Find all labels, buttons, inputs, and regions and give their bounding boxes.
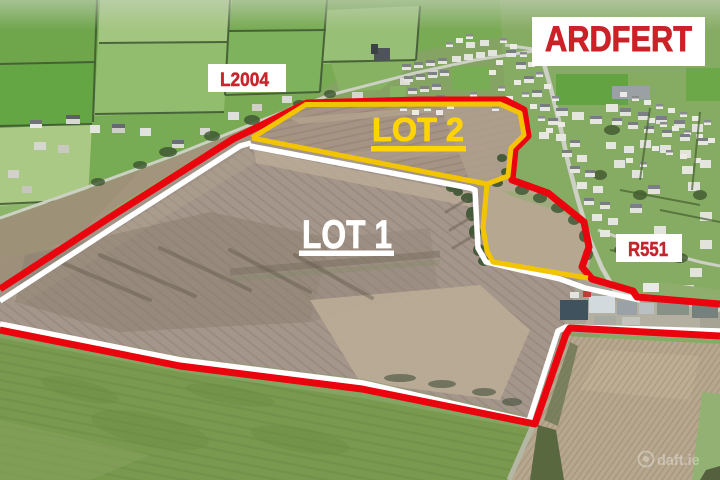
svg-text:ARDFERT: ARDFERT [545, 19, 692, 59]
svg-text:LOT 1: LOT 1 [302, 213, 392, 257]
svg-text:LOT 2: LOT 2 [372, 111, 464, 148]
svg-text:R551: R551 [628, 239, 668, 261]
svg-text:L2004: L2004 [220, 69, 269, 91]
svg-text:daft.ie: daft.ie [657, 453, 700, 469]
